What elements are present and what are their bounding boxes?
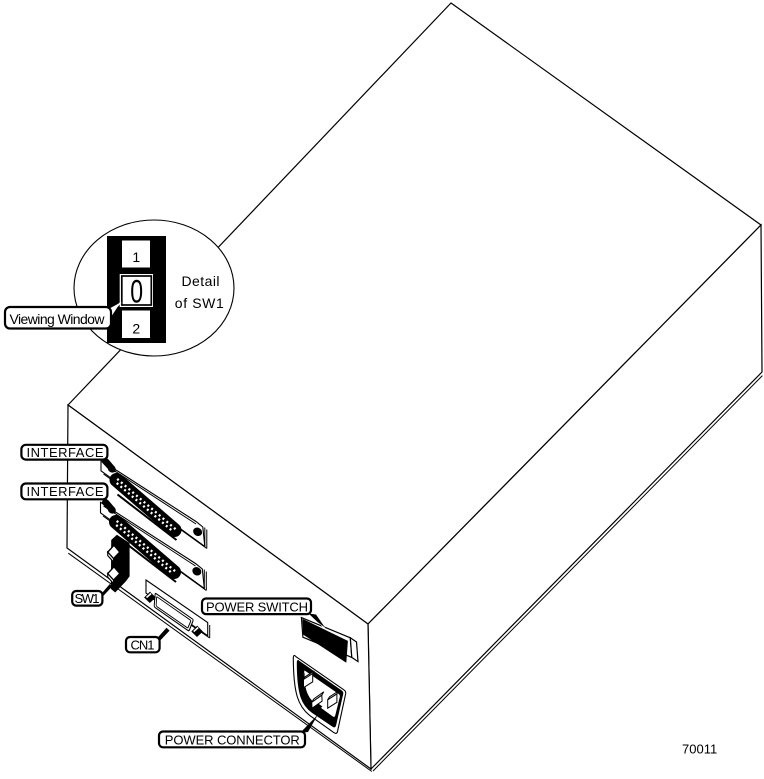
svg-text:2: 2 [132,321,140,337]
svg-text:0: 0 [130,274,143,310]
svg-text:SW1: SW1 [75,591,100,606]
svg-text:Detail: Detail [182,273,220,289]
svg-text:of SW1: of SW1 [175,295,224,311]
svg-text:POWER SWITCH: POWER SWITCH [206,599,308,614]
svg-text:Viewing Window: Viewing Window [10,311,106,327]
svg-text:70011: 70011 [682,741,717,756]
svg-text:INTERFACE: INTERFACE [27,445,104,460]
svg-text:POWER CONNECTOR: POWER CONNECTOR [165,732,300,747]
svg-text:1: 1 [132,249,140,265]
svg-text:INTERFACE: INTERFACE [27,484,104,499]
svg-text:CN1: CN1 [131,638,155,653]
